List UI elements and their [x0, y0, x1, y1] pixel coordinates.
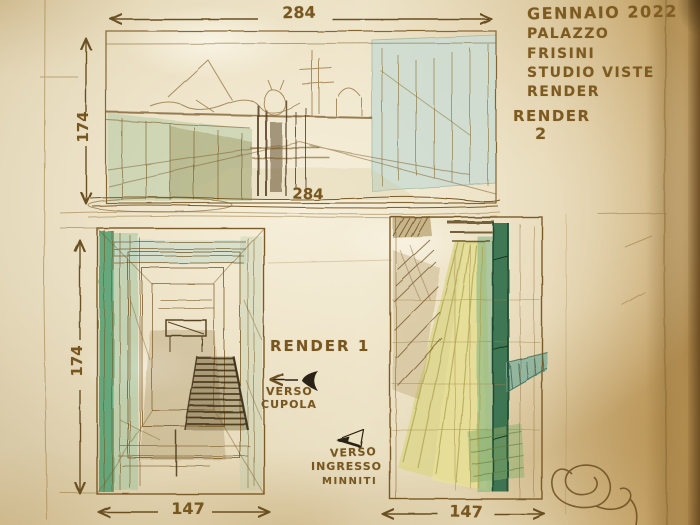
verso-ingresso-line3: MINNITI: [322, 476, 377, 487]
view-direction-ingresso: [338, 430, 364, 447]
ingresso-sketch: [390, 216, 547, 499]
verso-ingresso-line1: VERSO: [330, 445, 377, 460]
title-frisini: FRISINI: [527, 46, 595, 62]
verso-cupola-line2: CUPOLA: [261, 398, 317, 411]
sketch-sheet: 284 GENNAIO 2022 PALAZZO FRISINI STUDIO …: [0, 0, 700, 525]
render1-sketch: [97, 228, 264, 494]
scribble-doodle: [552, 465, 637, 525]
title-date: GENNAIO 2022: [527, 2, 678, 24]
title-palazzo: PALAZZO: [527, 26, 609, 42]
render2-label: RENDER: [513, 107, 591, 125]
dim-top-width-inner: 284: [282, 184, 335, 204]
title-render: RENDER: [527, 84, 600, 100]
dim-bottom-height: 174: [68, 337, 86, 385]
dim-top-height: 174: [74, 105, 92, 149]
dim-bottom-right-width: 147: [436, 501, 497, 522]
dim-bottom-left-width: 147: [158, 499, 218, 518]
verso-ingresso-line2: INGRESSO: [311, 460, 382, 473]
render1-label: RENDER 1: [270, 337, 370, 355]
title-studio-viste: STUDIO VISTE: [527, 65, 655, 81]
verso-cupola-line1: VERSO: [266, 385, 313, 398]
render2-number: 2: [535, 124, 548, 143]
dim-top-width: 284: [264, 2, 334, 22]
